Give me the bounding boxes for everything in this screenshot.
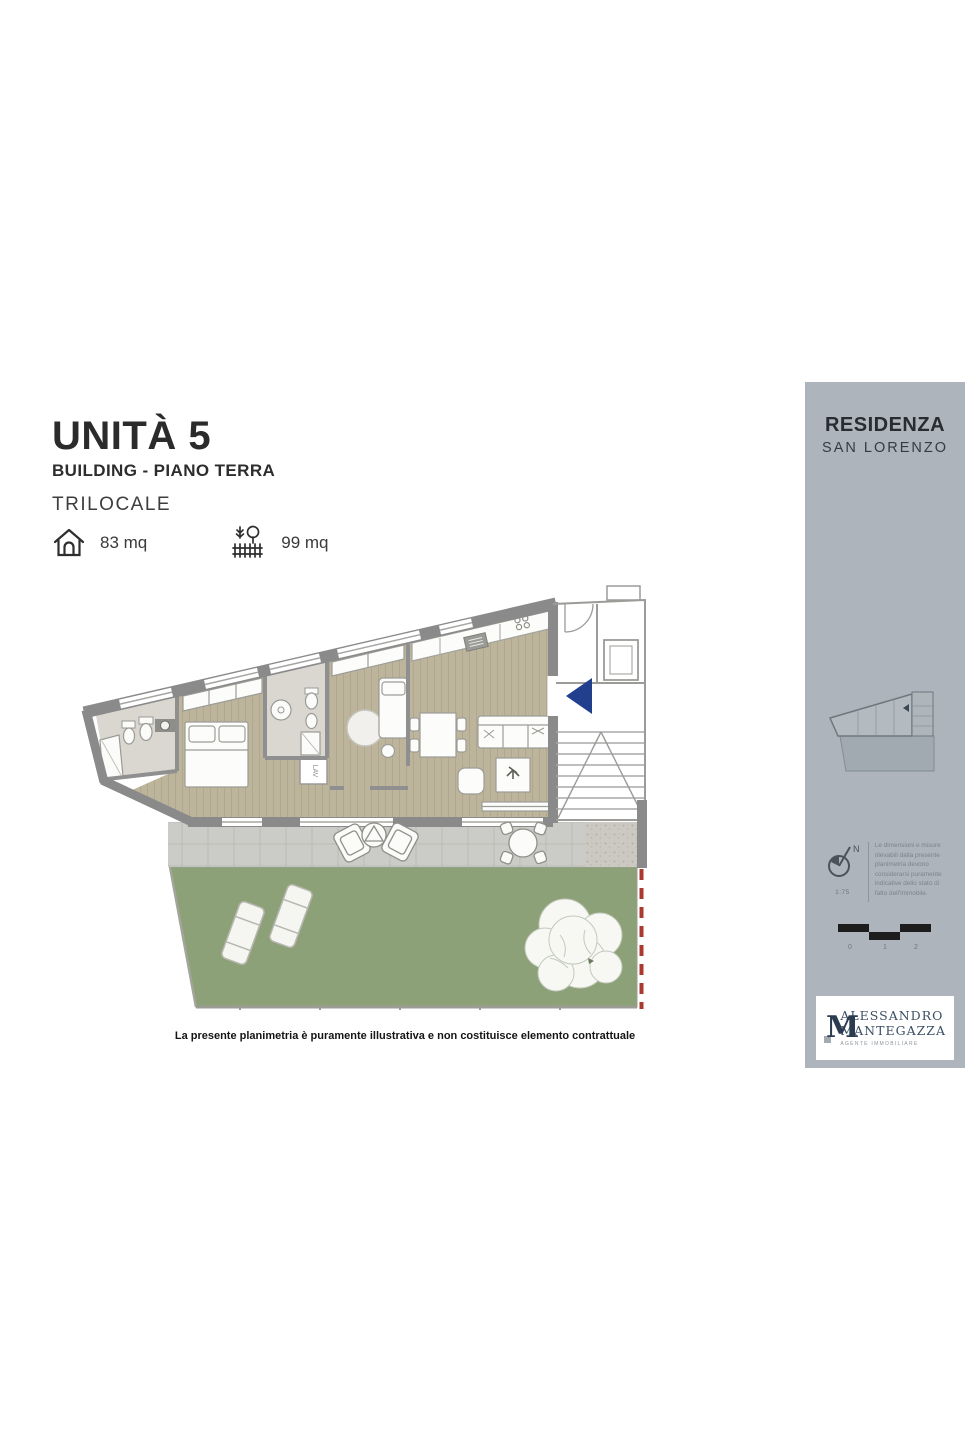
scale-segment: [900, 924, 931, 932]
garden-icon: [231, 524, 267, 561]
north-note-block: N 1:75 Le dimensioni e misure rilevabili…: [819, 840, 951, 902]
stairwell: [553, 586, 645, 820]
coffee-table: [496, 758, 530, 792]
armchair: [458, 768, 484, 794]
divider: [868, 842, 869, 902]
scale-segment: [838, 924, 869, 932]
house-icon: [52, 526, 86, 559]
page-subtitle: BUILDING - PIANO TERRA: [52, 461, 275, 481]
sofa: [478, 716, 552, 748]
floor-plan: LAV: [0, 580, 700, 1028]
residence-name: RESIDENZA: [805, 414, 965, 437]
sidebar: RESIDENZA SAN LORENZO N 1:: [805, 382, 965, 1068]
agency-logo: M ALESSANDRO MANTEGAZZA AGENTE IMMOBILIA…: [816, 996, 954, 1060]
scale-segment: [869, 932, 900, 940]
logo-monogram: M: [824, 1008, 833, 1048]
plan-disclaimer: La presente planimetria è puramente illu…: [130, 1030, 680, 1042]
scale-label-1: 1: [875, 944, 895, 951]
interior-area-value: 83 mq: [100, 533, 147, 553]
residence-title-block: RESIDENZA SAN LORENZO: [805, 414, 965, 456]
scale-label-2: 2: [906, 944, 926, 951]
scale-ratio: 1:75: [819, 889, 866, 896]
exterior-area-value: 99 mq: [281, 533, 328, 553]
boundary-wall: [637, 800, 647, 868]
laundry-label: LAV: [311, 765, 318, 778]
dwelling-type: TRILOCALE: [52, 494, 171, 516]
north-icon: N: [822, 840, 862, 882]
scale-bar: 0 1 2: [805, 922, 965, 962]
tv-sideboard: [482, 802, 552, 811]
residence-subname: SAN LORENZO: [805, 440, 965, 456]
north-label: N: [853, 844, 860, 854]
area-row: 83 mq 99 mq: [52, 524, 329, 561]
unit-locator-map: [826, 678, 944, 774]
page-title: UNITÀ 5: [52, 414, 211, 459]
measurement-note: Le dimensioni e misure rilevabili dalla …: [875, 840, 951, 902]
scale-label-0: 0: [840, 944, 860, 951]
brochure-page: UNITÀ 5 BUILDING - PIANO TERRA TRILOCALE…: [0, 0, 965, 1448]
